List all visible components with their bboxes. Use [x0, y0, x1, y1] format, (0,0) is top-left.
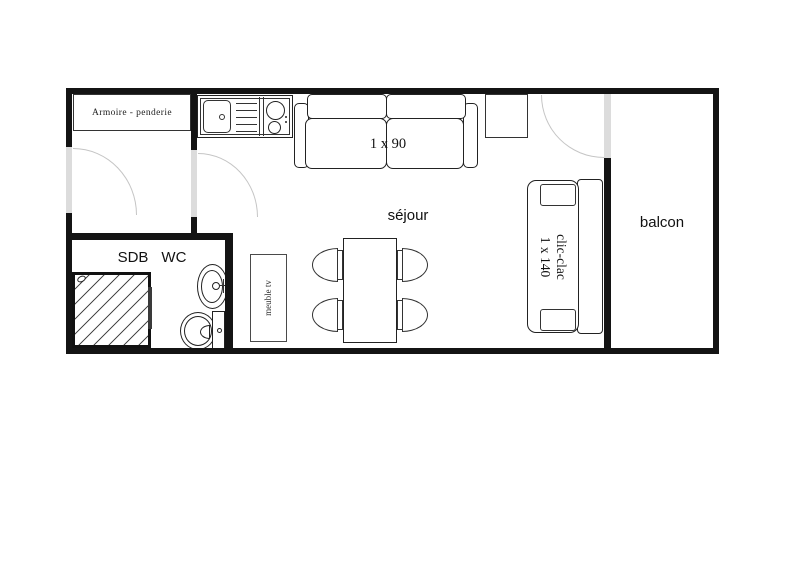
chair: [312, 248, 338, 282]
chair: [312, 298, 338, 332]
hob-burner-small-icon: [268, 121, 281, 134]
door-arc-entry: [73, 148, 137, 215]
sink-drainer-line: [236, 103, 257, 104]
sofa-bed-size: 1 x 140: [537, 237, 553, 278]
sink-drain-icon: [219, 114, 225, 120]
sofa-bed-pillow: [540, 184, 576, 206]
sofa-back-cushion: [386, 94, 466, 119]
kitchen-sink-basin: [203, 100, 231, 133]
sink-drainer-line: [236, 131, 257, 132]
cabinet: [485, 94, 528, 138]
shower: [72, 272, 151, 348]
door-arc-hall: [198, 153, 258, 217]
interior-wall-bathroom-right: [225, 240, 233, 348]
sofa-bed-name: clic-clac: [553, 234, 569, 280]
sofa-bed-backrest: [577, 179, 603, 334]
door-opening-entry: [66, 147, 72, 213]
sofa-bed-label: clic-clac 1 x 140: [536, 221, 570, 293]
sofa-bed-pillow: [540, 309, 576, 331]
door-opening-balcony: [604, 94, 611, 158]
hob-burner-large-icon: [266, 101, 285, 120]
shower-door: [148, 287, 152, 329]
exterior-wall-bottom: [66, 348, 719, 354]
chair: [402, 248, 428, 282]
sink-drainer-line: [236, 117, 257, 118]
toilet-flush-button: [217, 328, 222, 333]
exterior-wall-left: [66, 88, 72, 354]
sink-drainer-line: [236, 124, 257, 125]
chair: [402, 298, 428, 332]
wardrobe-label: Armoire - penderie: [73, 94, 191, 131]
bathroom-label: SDB: [118, 249, 149, 266]
sofa-back-cushion: [307, 94, 387, 119]
exterior-wall-right: [713, 88, 719, 354]
single-bed-label: 1 x 90: [338, 136, 438, 152]
tv-unit-label: meuble tv: [262, 275, 274, 321]
balcony-label: balcon: [611, 214, 713, 231]
faucet-bar: [223, 279, 224, 293]
sink-drainer-line: [236, 110, 257, 111]
dining-table: [343, 238, 397, 343]
floor-plan: Armoire - penderie 1 x 90 clic-clac 1 x …: [0, 0, 800, 566]
bathroom-labels: SDB WC: [112, 249, 192, 266]
door-opening-hall: [191, 150, 197, 217]
living-room-label: séjour: [358, 207, 458, 224]
interior-wall-bathroom-top: [66, 233, 233, 240]
door-arc-balcony: [541, 95, 604, 158]
kitchen-divider: [259, 97, 264, 136]
wc-label: WC: [161, 249, 186, 266]
